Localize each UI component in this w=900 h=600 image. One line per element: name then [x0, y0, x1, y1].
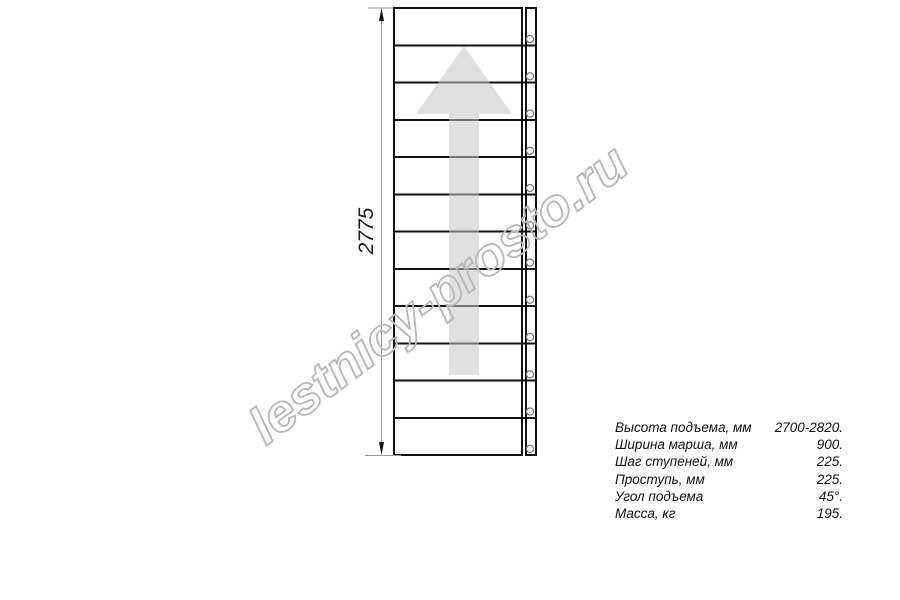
dimension-label: 2775	[355, 207, 378, 255]
spec-value: 225.	[807, 453, 843, 470]
spec-label: Ширина марша, мм	[615, 436, 738, 453]
bolt-circle	[526, 35, 533, 42]
spec-value: 45°.	[809, 488, 843, 505]
spec-value: 2700-2820.	[765, 419, 843, 436]
spec-row-width: Ширина марша, мм 900.	[615, 436, 843, 453]
bolt-circle	[526, 408, 533, 415]
spec-value: 225.	[807, 471, 843, 488]
spec-label: Масса, кг	[615, 505, 675, 522]
spec-row-step: Шаг ступеней, мм 225.	[615, 453, 843, 470]
spec-value: 900.	[807, 436, 843, 453]
bolt-circle	[526, 371, 533, 378]
bolt-circle	[526, 147, 533, 154]
spec-row-angle: Угол подъема 45°.	[615, 488, 843, 505]
spec-label: Угол подъема	[615, 488, 703, 505]
spec-label: Проступь, мм	[615, 471, 705, 488]
dimension-arrowhead-bottom	[379, 442, 384, 455]
spec-label: Высота подъема, мм	[615, 419, 751, 436]
spec-label: Шаг ступеней, мм	[615, 453, 733, 470]
bolt-circle	[526, 333, 533, 340]
bolt-circle	[526, 296, 533, 303]
spec-table: Высота подъема, мм 2700-2820. Ширина мар…	[615, 419, 843, 522]
spec-row-tread: Проступь, мм 225.	[615, 471, 843, 488]
spec-row-mass: Масса, кг 195.	[615, 505, 843, 522]
spec-row-height: Высота подъема, мм 2700-2820.	[615, 419, 843, 436]
bolt-circle	[526, 73, 533, 80]
bolt-circle	[526, 110, 533, 117]
dimension-arrowhead-top	[379, 8, 384, 21]
spec-value: 195.	[807, 505, 843, 522]
bolt-circle	[526, 445, 533, 452]
